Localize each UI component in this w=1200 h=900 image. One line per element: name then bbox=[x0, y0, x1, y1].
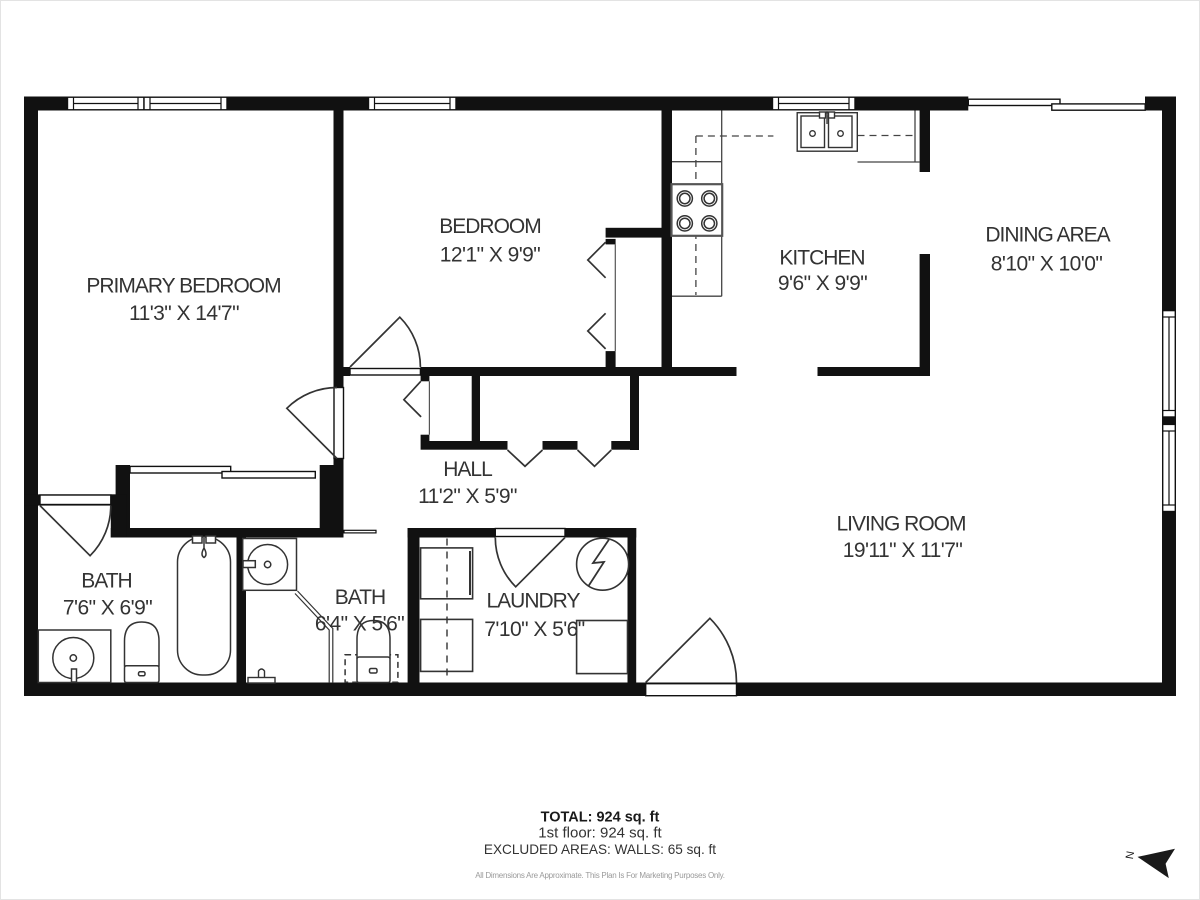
svg-text:1st floor: 924 sq. ft: 1st floor: 924 sq. ft bbox=[538, 825, 662, 842]
svg-text:7'6" X 6'9": 7'6" X 6'9" bbox=[63, 597, 152, 620]
svg-text:HALL: HALL bbox=[443, 458, 492, 481]
svg-text:11'2" X 5'9": 11'2" X 5'9" bbox=[418, 485, 517, 508]
svg-text:EXCLUDED AREAS: WALLS: 65 sq.: EXCLUDED AREAS: WALLS: 65 sq. ft bbox=[484, 842, 716, 857]
svg-text:PRIMARY BEDROOM: PRIMARY BEDROOM bbox=[86, 275, 280, 298]
svg-text:All Dimensions Are Approximate: All Dimensions Are Approximate. This Pla… bbox=[475, 871, 725, 880]
svg-text:9'6" X 9'9": 9'6" X 9'9" bbox=[778, 272, 867, 295]
svg-text:TOTAL: 924 sq. ft: TOTAL: 924 sq. ft bbox=[541, 809, 660, 825]
svg-text:KITCHEN: KITCHEN bbox=[779, 247, 864, 270]
svg-text:BATH: BATH bbox=[335, 586, 385, 609]
svg-text:19'11" X 11'7": 19'11" X 11'7" bbox=[843, 539, 963, 562]
svg-text:7'10" X 5'6": 7'10" X 5'6" bbox=[484, 618, 584, 641]
svg-text:BATH: BATH bbox=[81, 570, 131, 593]
svg-text:LAUNDRY: LAUNDRY bbox=[487, 590, 581, 613]
svg-text:12'1" X 9'9": 12'1" X 9'9" bbox=[440, 244, 540, 267]
svg-text:BEDROOM: BEDROOM bbox=[439, 215, 541, 238]
svg-text:DINING AREA: DINING AREA bbox=[985, 224, 1110, 247]
svg-text:LIVING ROOM: LIVING ROOM bbox=[836, 513, 965, 536]
svg-text:6'4" X 5'6": 6'4" X 5'6" bbox=[315, 613, 404, 636]
svg-text:8'10" X 10'0": 8'10" X 10'0" bbox=[991, 253, 1103, 276]
svg-text:11'3" X 14'7": 11'3" X 14'7" bbox=[129, 302, 239, 325]
